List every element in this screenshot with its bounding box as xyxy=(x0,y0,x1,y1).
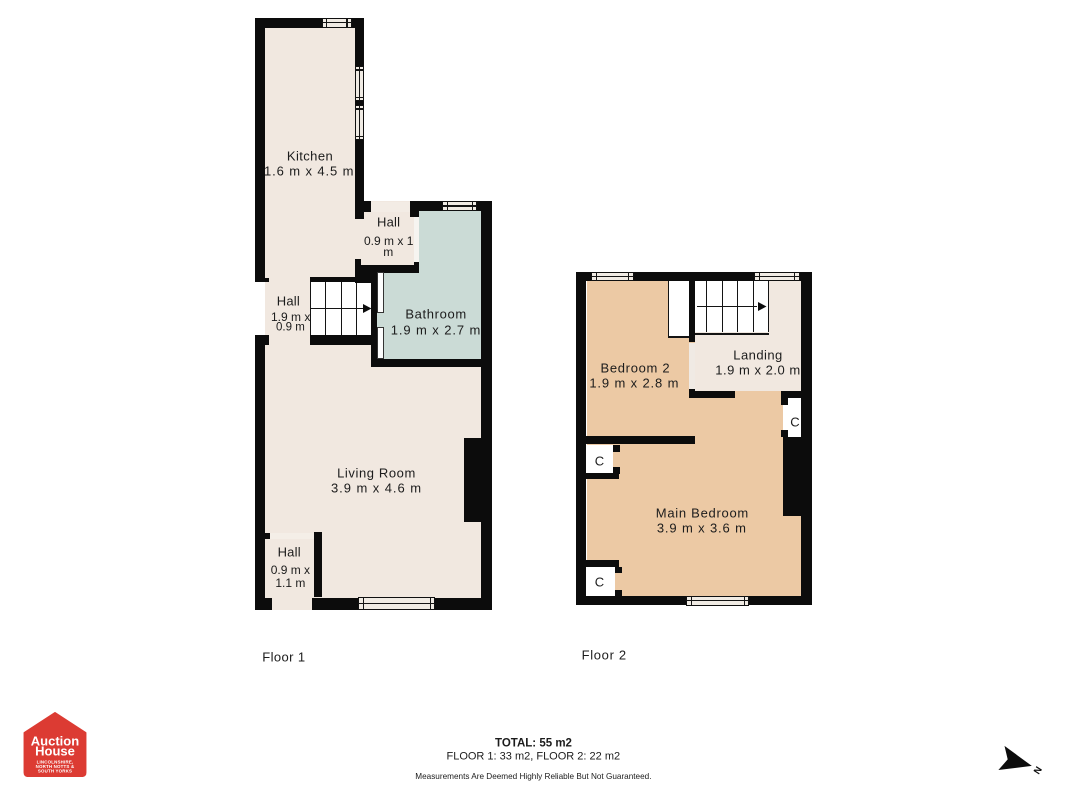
svg-text:SOUTH YORKS: SOUTH YORKS xyxy=(38,768,72,773)
svg-text:House: House xyxy=(35,743,75,758)
svg-text:N: N xyxy=(1031,764,1044,776)
